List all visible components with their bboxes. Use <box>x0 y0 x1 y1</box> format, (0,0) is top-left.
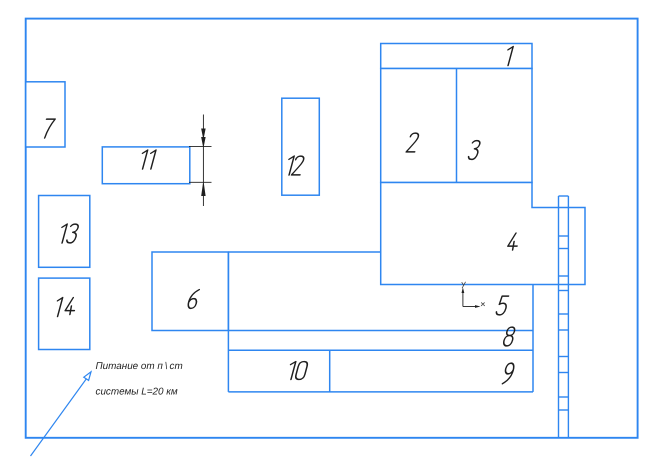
svg-text:системы L=20 км: системы L=20 км <box>96 387 178 398</box>
svg-text:Питание от п \ ст: Питание от п \ ст <box>96 361 183 372</box>
